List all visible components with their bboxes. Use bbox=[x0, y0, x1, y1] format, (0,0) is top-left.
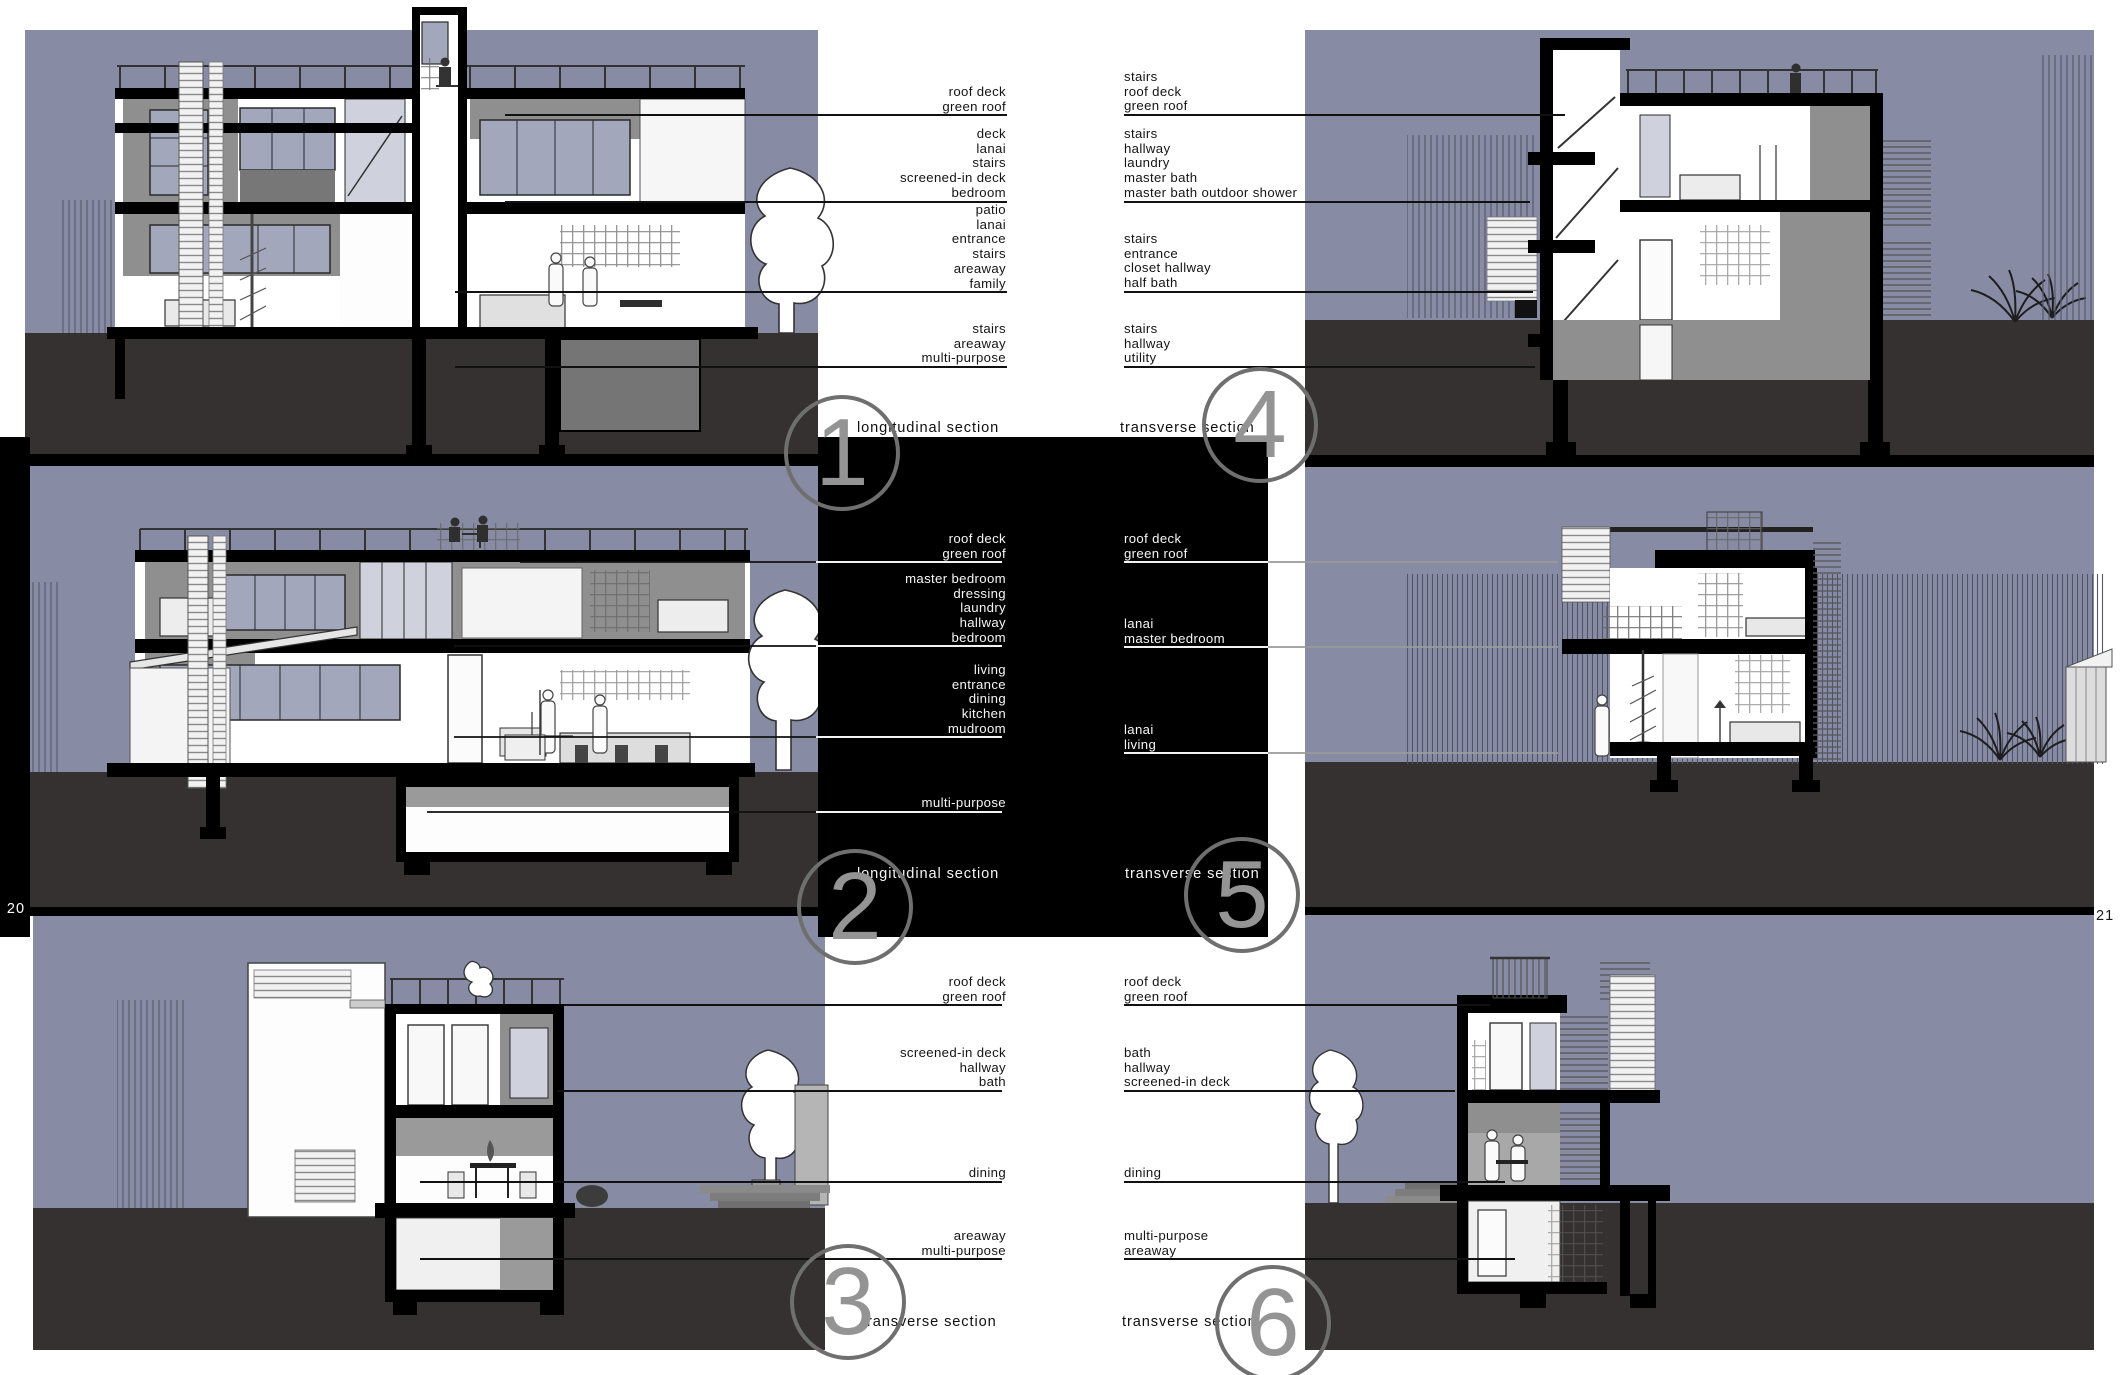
section-5-labels-group-2: lanaimaster bedroom bbox=[1124, 617, 1404, 646]
section-5-labels-group-1: roof deckgreen roof bbox=[1124, 532, 1404, 561]
room-label: green roof bbox=[811, 100, 1006, 115]
section-2-labels-group-2: master bedroomdressinglaundryhallwaybedr… bbox=[811, 572, 1006, 646]
room-label: dressing bbox=[811, 587, 1006, 602]
room-label: utility bbox=[1124, 351, 1404, 366]
room-label: areaway bbox=[811, 262, 1006, 277]
room-label: areaway bbox=[811, 337, 1006, 352]
section-6-labels-group-2: bathhallwayscreened-in deck bbox=[1124, 1046, 1404, 1090]
room-label: laundry bbox=[1124, 156, 1404, 171]
room-label: master bath bbox=[1124, 171, 1404, 186]
room-label: patio bbox=[811, 203, 1006, 218]
section-1-number-badge: 1 bbox=[784, 395, 900, 511]
room-label: master bath outdoor shower bbox=[1124, 186, 1404, 201]
room-label: closet hallway bbox=[1124, 261, 1404, 276]
room-label: bath bbox=[1124, 1046, 1404, 1061]
room-label: areaway bbox=[811, 1229, 1006, 1244]
section-2-number-badge: 2 bbox=[797, 849, 913, 965]
section-4-labels-group-4: stairshallwayutility bbox=[1124, 322, 1404, 366]
room-label: master bedroom bbox=[811, 572, 1006, 587]
room-label: bath bbox=[811, 1075, 1006, 1090]
section-6-labels-group-3: dining bbox=[1124, 1166, 1404, 1181]
room-label: hallway bbox=[1124, 337, 1404, 352]
room-label: dining bbox=[811, 692, 1006, 707]
room-label: bedroom bbox=[811, 631, 1006, 646]
room-label: entrance bbox=[811, 232, 1006, 247]
room-label: green roof bbox=[1124, 99, 1404, 114]
section-2-labels-group-3: livingentrancediningkitchenmudroom bbox=[811, 663, 1006, 737]
room-label: stairs bbox=[1124, 322, 1404, 337]
room-label: mudroom bbox=[811, 722, 1006, 737]
room-label: hallway bbox=[811, 1061, 1006, 1076]
section-4-labels-group-2: stairshallwaylaundrymaster bathmaster ba… bbox=[1124, 127, 1404, 201]
section-5-labels-group-3: lanailiving bbox=[1124, 723, 1404, 752]
page-number-left: 20 bbox=[3, 901, 29, 917]
section-4-labels-group-3: stairsentrancecloset hallwayhalf bath bbox=[1124, 232, 1404, 291]
page-number-right: 21 bbox=[2096, 908, 2124, 924]
room-label: multi-purpose bbox=[811, 351, 1006, 366]
room-label: green roof bbox=[1124, 990, 1404, 1005]
section-3-labels-group-3: dining bbox=[811, 1166, 1006, 1181]
section-2-labels-group-1: roof deckgreen roof bbox=[811, 532, 1006, 561]
room-label: entrance bbox=[811, 678, 1006, 693]
room-label: living bbox=[1124, 738, 1404, 753]
room-label: dining bbox=[1124, 1166, 1404, 1181]
room-label: dining bbox=[811, 1166, 1006, 1181]
room-label: multi-purpose bbox=[1124, 1229, 1404, 1244]
room-label: lanai bbox=[811, 142, 1006, 157]
room-label: deck bbox=[811, 127, 1006, 142]
room-label: bedroom bbox=[811, 186, 1006, 201]
room-label: lanai bbox=[811, 218, 1006, 233]
room-label: hallway bbox=[1124, 142, 1404, 157]
section-3-number-badge: 3 bbox=[790, 1244, 906, 1360]
room-label: roof deck bbox=[811, 85, 1006, 100]
room-label: stairs bbox=[1124, 232, 1404, 247]
room-label: roof deck bbox=[811, 975, 1006, 990]
section-1-labels-group-4: stairsareawaymulti-purpose bbox=[811, 322, 1006, 366]
section-4-labels-group-1: stairsroof deckgreen roof bbox=[1124, 70, 1404, 114]
room-label: stairs bbox=[1124, 127, 1404, 142]
room-label: family bbox=[811, 277, 1006, 292]
room-label: green roof bbox=[811, 990, 1006, 1005]
room-label: screened-in deck bbox=[811, 1046, 1006, 1061]
room-label: hallway bbox=[811, 616, 1006, 631]
room-label: roof deck bbox=[1124, 532, 1404, 547]
section-6-number-badge: 6 bbox=[1215, 1265, 1331, 1375]
room-label: lanai bbox=[1124, 723, 1404, 738]
room-label: hallway bbox=[1124, 1061, 1404, 1076]
room-label: stairs bbox=[811, 156, 1006, 171]
room-label: half bath bbox=[1124, 276, 1404, 291]
section-5-number-badge: 5 bbox=[1184, 837, 1300, 953]
section-2-labels-group-4: multi-purpose bbox=[811, 796, 1006, 811]
room-label: lanai bbox=[1124, 617, 1404, 632]
section-3-labels-group-2: screened-in deckhallwaybath bbox=[811, 1046, 1006, 1090]
room-label: roof deck bbox=[1124, 85, 1404, 100]
room-label: roof deck bbox=[1124, 975, 1404, 990]
section-6-labels-group-4: multi-purposeareaway bbox=[1124, 1229, 1404, 1258]
room-label: stairs bbox=[1124, 70, 1404, 85]
room-label: stairs bbox=[811, 322, 1006, 337]
room-label: living bbox=[811, 663, 1006, 678]
room-label: multi-purpose bbox=[811, 796, 1006, 811]
section-4-number-badge: 4 bbox=[1202, 367, 1318, 483]
room-label: green roof bbox=[1124, 547, 1404, 562]
artwork-layer bbox=[0, 0, 2125, 1375]
section-3-labels-group-1: roof deckgreen roof bbox=[811, 975, 1006, 1004]
room-label: screened-in deck bbox=[811, 171, 1006, 186]
left-edge-black-bar bbox=[0, 437, 30, 937]
room-label: green roof bbox=[811, 547, 1006, 562]
room-label: master bedroom bbox=[1124, 632, 1404, 647]
section-1-labels-group-2: decklanaistairsscreened-in deckbedroom bbox=[811, 127, 1006, 201]
section-6-labels-group-1: roof deckgreen roof bbox=[1124, 975, 1404, 1004]
section-1-labels-group-3: patiolanaientrancestairsareawayfamily bbox=[811, 203, 1006, 291]
room-label: roof deck bbox=[811, 532, 1006, 547]
room-label: kitchen bbox=[811, 707, 1006, 722]
section-1-labels-group-1: roof deckgreen roof bbox=[811, 85, 1006, 114]
room-label: laundry bbox=[811, 601, 1006, 616]
book-spread-page: roof deckgreen roof decklanaistairsscree… bbox=[0, 0, 2125, 1375]
room-label: screened-in deck bbox=[1124, 1075, 1404, 1090]
room-label: stairs bbox=[811, 247, 1006, 262]
room-label: areaway bbox=[1124, 1244, 1404, 1259]
room-label: entrance bbox=[1124, 247, 1404, 262]
